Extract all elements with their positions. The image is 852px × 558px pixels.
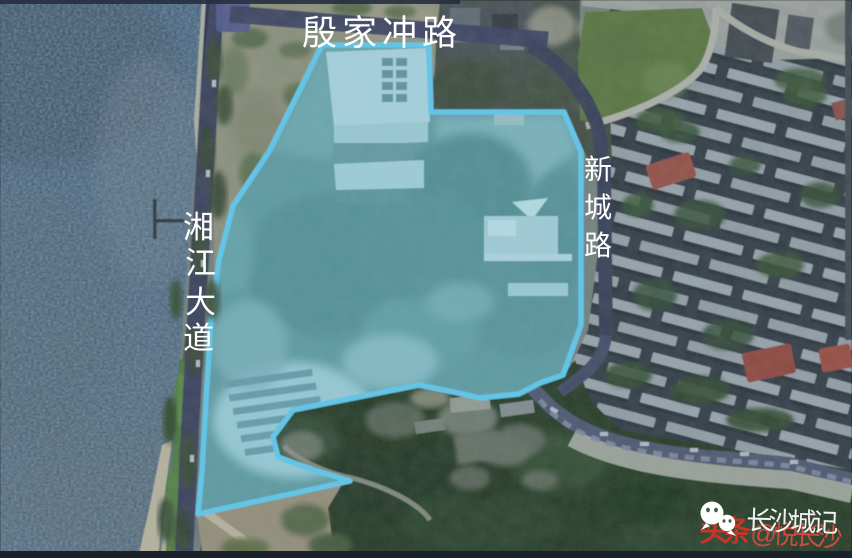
svg-text:长沙城记: 长沙城记 <box>746 505 838 538</box>
svg-text:殷家冲路: 殷家冲路 <box>302 14 462 53</box>
svg-text:道: 道 <box>183 321 214 356</box>
svg-text:大: 大 <box>185 285 216 320</box>
svg-text:城: 城 <box>584 192 612 223</box>
svg-text:路: 路 <box>584 230 612 261</box>
svg-text:新: 新 <box>584 154 612 185</box>
svg-text:湘: 湘 <box>183 210 214 245</box>
svg-text:江: 江 <box>185 246 216 281</box>
